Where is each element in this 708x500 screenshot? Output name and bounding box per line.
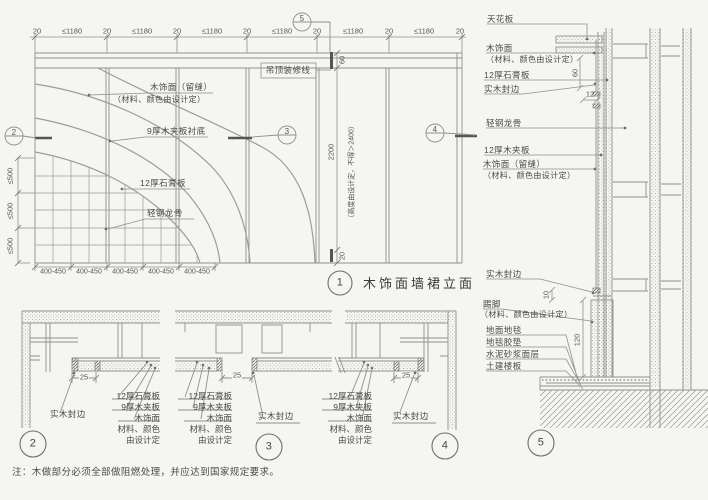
cut-marker-3: 3	[285, 128, 290, 136]
dim-20: 20	[103, 27, 111, 35]
dim-400-450: 400-450	[76, 269, 102, 276]
dim-20: 20	[173, 27, 181, 35]
dim-1180: ≤1180	[62, 27, 82, 35]
detail2-layer-stack: 12厚石膏板 9厚木夹板 木饰面 材料、颜色 由设计定	[105, 391, 160, 446]
label-spec-note: （材料、颜色由设计定）	[113, 96, 205, 104]
stack-line: 12厚石膏板	[317, 391, 372, 402]
detail2-number: 2	[30, 439, 37, 450]
label-veneer: 木饰面	[486, 44, 513, 53]
elevation-title: 木饰面墙裙立面	[363, 277, 475, 290]
detail4-number: 4	[442, 441, 449, 452]
label-gypsum: 12厚石膏板	[140, 179, 186, 188]
label-skirting: 踢脚	[483, 300, 501, 309]
stack-line: 材料、颜色	[317, 424, 372, 435]
stack-line: 木饰面	[105, 413, 160, 424]
dim-60: 60	[571, 69, 579, 77]
label-wood-edge: 实木封边	[486, 270, 522, 279]
dim-400-450: 400-450	[184, 269, 210, 276]
cut-marker-4: 4	[433, 126, 438, 134]
dim-20: 20	[313, 27, 321, 35]
elevation-frame	[35, 53, 462, 263]
dim-1180: ≤1180	[272, 27, 292, 35]
dim-25: 25	[79, 373, 89, 381]
dim-500: ≤500	[6, 238, 14, 255]
dim-20: 20	[243, 27, 251, 35]
label-plywood: 9厚木夹板衬底	[147, 127, 206, 136]
cut-marker-2: 2	[12, 129, 17, 137]
dim-400-450: 400-450	[112, 269, 138, 276]
cut-marker-5: 5	[300, 15, 305, 23]
label-keel: 轻钢龙骨	[486, 119, 522, 128]
label-veneer: 木饰面（留缝）	[150, 83, 212, 92]
dim-height-note: （高度由设计定，不得＞2400）	[349, 122, 356, 222]
detail1-number: 1	[337, 278, 344, 289]
dim-1180: ≤1180	[132, 27, 152, 35]
label-wood-edge: 实木封边	[50, 410, 86, 419]
dim-1180: ≤1180	[202, 27, 222, 35]
dim-10: 10	[542, 291, 550, 299]
label-veneer-seam: 木饰面（留缝）	[483, 160, 545, 169]
label-mortar: 水泥砂浆面层	[486, 350, 539, 359]
label-plywood: 12厚木夹板	[484, 146, 530, 155]
stack-line: 9厚木夹板	[105, 402, 160, 413]
dim-12: 12	[586, 90, 594, 98]
stack-line: 12厚石膏板	[177, 391, 232, 402]
stack-line: 由设计定	[105, 435, 160, 446]
top-dim-line	[30, 34, 466, 53]
stack-line: 9厚木夹板	[177, 402, 232, 413]
dim-500: ≤500	[6, 168, 14, 185]
flame-retardant-note: 注：木做部分必须全部做阻燃处理，并应达到国家规定要求。	[12, 468, 279, 478]
label-ceiling: 天花板	[487, 15, 514, 24]
drawing-sheet: 20 ≤1180 20 ≤1180 20 ≤1180 20 ≤1180 20 ≤…	[0, 0, 708, 500]
dim-60: 60	[338, 56, 346, 64]
label-gypsum: 12厚石膏板	[484, 71, 530, 80]
dim-1180: ≤1180	[343, 27, 363, 35]
label-wood-edge: 实木封边	[393, 412, 429, 421]
label-spec-note: （材料、颜色由设计定）	[486, 56, 578, 64]
detail3-layer-stack: 12厚石膏板 9厚木夹板 木饰面 材料、颜色 由设计定	[177, 391, 232, 446]
dim-20-bottom: 20	[338, 252, 346, 260]
dim-20: 20	[456, 27, 464, 35]
detail5-section	[540, 28, 708, 428]
stack-line: 12厚石膏板	[105, 391, 160, 402]
label-ceiling-trim: 吊顶装修线	[266, 66, 311, 75]
dim-25: 25	[401, 371, 411, 379]
dim-2200: 2200	[327, 144, 335, 161]
stack-line: 9厚木夹板	[317, 402, 372, 413]
dim-20: 20	[33, 27, 41, 35]
dim-400-450: 400-450	[148, 269, 174, 276]
stack-line: 由设计定	[317, 435, 372, 446]
detail5-number: 5	[538, 438, 545, 449]
stack-line: 材料、颜色	[177, 424, 232, 435]
stack-line: 材料、颜色	[105, 424, 160, 435]
label-carpet: 地面地毯	[486, 326, 522, 335]
stack-line: 木饰面	[317, 413, 372, 424]
label-keel: 轻钢龙骨	[147, 209, 183, 218]
label-slab: 土建楼板	[486, 362, 522, 371]
detail3-number: 3	[266, 442, 273, 453]
label-underlay: 地毯胶垫	[486, 338, 522, 347]
stack-line: 木饰面	[177, 413, 232, 424]
left-dim-line	[15, 155, 35, 266]
label-wood-edge: 实木封边	[258, 412, 294, 421]
dim-120: 120	[573, 334, 581, 347]
stack-line: 由设计定	[177, 435, 232, 446]
dim-20: 20	[385, 27, 393, 35]
dim-400-450: 400-450	[40, 269, 66, 276]
dim-25: 25	[232, 371, 242, 379]
label-spec-note: （材料、颜色由设计定）	[483, 172, 575, 180]
label-spec-note: （材料、颜色由设计定）	[480, 311, 572, 319]
dim-1180: ≤1180	[414, 27, 434, 35]
dim-500: ≤500	[6, 203, 14, 220]
detail4-layer-stack: 12厚石膏板 9厚木夹板 木饰面 材料、颜色 由设计定	[317, 391, 372, 446]
label-wood-edge: 实木封边	[484, 85, 520, 94]
